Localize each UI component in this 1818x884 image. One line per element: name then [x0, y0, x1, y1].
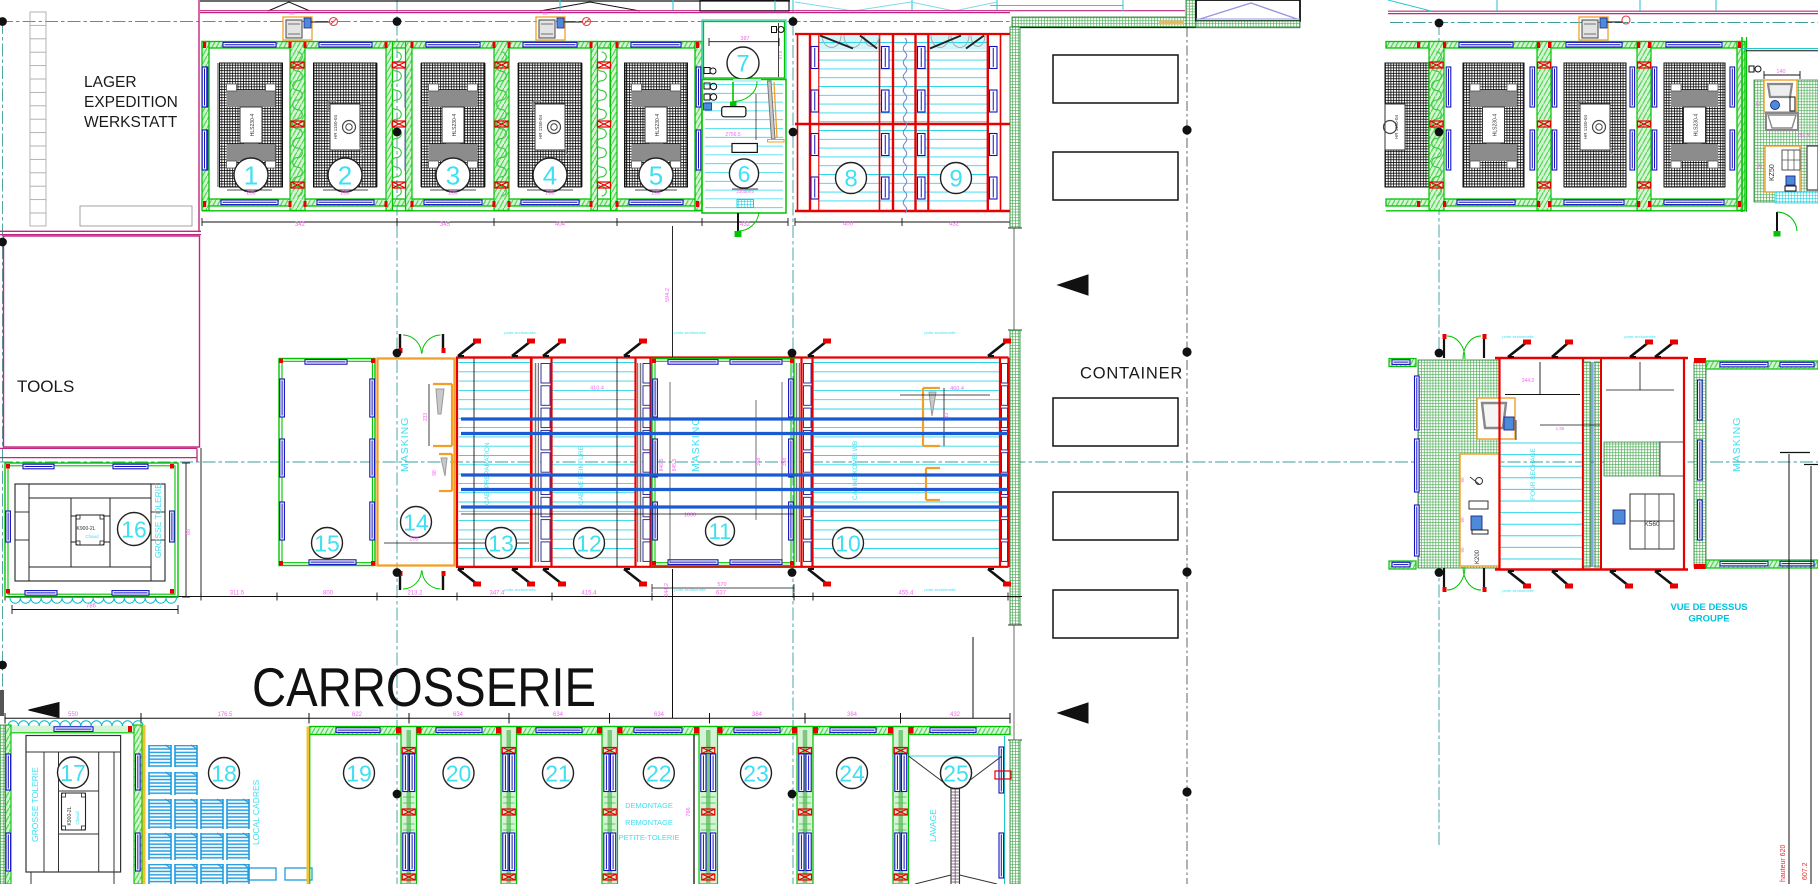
svg-text:20: 20 — [446, 760, 472, 786]
svg-text:HR 1150-04: HR 1150-04 — [1583, 115, 1588, 139]
svg-text:634: 634 — [453, 712, 464, 718]
svg-text:HLS230-4: HLS230-4 — [1694, 114, 1700, 137]
svg-text:14: 14 — [403, 509, 429, 535]
svg-text:REMONTAGE: REMONTAGE — [625, 818, 673, 827]
svg-text:230: 230 — [448, 191, 457, 197]
svg-text:230: 230 — [651, 191, 660, 197]
svg-text:KZ50: KZ50 — [1769, 164, 1776, 181]
svg-text:porte sectionnelle: porte sectionnelle — [1502, 588, 1534, 593]
svg-text:622: 622 — [352, 712, 363, 718]
svg-text:23: 23 — [743, 760, 769, 786]
svg-text:140: 140 — [1776, 69, 1785, 75]
svg-text:384: 384 — [847, 712, 858, 718]
svg-text:9: 9 — [949, 166, 962, 193]
svg-text:HLS230-4: HLS230-4 — [655, 114, 661, 137]
svg-text:LOCAL CADRES: LOCAL CADRES — [251, 779, 261, 845]
svg-text:K900-2L: K900-2L — [77, 526, 96, 532]
svg-text:EXPEDITION: EXPEDITION — [84, 94, 178, 111]
svg-text:MASKING: MASKING — [1731, 417, 1743, 472]
svg-text:MASKING: MASKING — [399, 417, 411, 472]
svg-text:800: 800 — [323, 591, 334, 597]
svg-text:634: 634 — [553, 712, 564, 718]
svg-text:432: 432 — [949, 222, 960, 228]
svg-text:HLS230-4: HLS230-4 — [452, 114, 458, 137]
svg-text:311.5: 311.5 — [230, 591, 245, 597]
svg-text:18: 18 — [211, 760, 237, 786]
svg-text:387: 387 — [740, 36, 749, 42]
svg-text:K560: K560 — [1644, 521, 1660, 528]
svg-text:LAGER: LAGER — [84, 74, 137, 91]
svg-text:porte sectionnelle: porte sectionnelle — [674, 330, 706, 335]
svg-text:3: 3 — [446, 160, 460, 190]
svg-text:460.4: 460.4 — [950, 386, 964, 392]
svg-text:230: 230 — [545, 191, 554, 197]
svg-text:607.2: 607.2 — [1802, 862, 1809, 880]
svg-text:12: 12 — [576, 530, 602, 556]
svg-text:CONTAINER: CONTAINER — [1080, 365, 1183, 383]
svg-text:HR 1150-04: HR 1150-04 — [333, 115, 338, 139]
svg-text:K900-2L: K900-2L — [67, 806, 73, 825]
svg-text:VUE DE DESSUS: VUE DE DESSUS — [1670, 602, 1747, 613]
svg-text:1: 1 — [244, 160, 258, 190]
svg-text:1600: 1600 — [684, 513, 696, 519]
svg-text:PETITE-TOLERIE: PETITE-TOLERIE — [619, 833, 680, 842]
svg-text:634: 634 — [654, 712, 665, 718]
svg-text:CABINE KOMBI WB: CABINE KOMBI WB — [852, 441, 859, 500]
svg-text:230: 230 — [340, 191, 349, 197]
svg-text:594.2: 594.2 — [665, 288, 671, 302]
svg-text:97.5: 97.5 — [778, 50, 783, 59]
svg-text:252.5: 252.5 — [1797, 133, 1810, 139]
svg-text:15: 15 — [314, 530, 340, 556]
svg-text:HLS230-4: HLS230-4 — [1493, 114, 1499, 137]
svg-text:hauteur 620: hauteur 620 — [1780, 845, 1787, 882]
svg-text:porte sectionnelle: porte sectionnelle — [504, 330, 536, 335]
svg-text:90: 90 — [1460, 517, 1465, 523]
svg-text:porte sectionnelle: porte sectionnelle — [924, 587, 956, 592]
svg-text:347.4: 347.4 — [489, 591, 505, 597]
svg-text:455.4: 455.4 — [898, 591, 914, 597]
svg-text:WERKSTATT: WERKSTATT — [84, 114, 178, 131]
svg-text:213.2: 213.2 — [407, 591, 423, 597]
svg-text:176.5: 176.5 — [217, 712, 233, 718]
svg-text:FOUR SECHAGE: FOUR SECHAGE — [1530, 447, 1537, 500]
svg-text:CARROSSERIE: CARROSSERIE — [252, 656, 596, 718]
svg-text:19: 19 — [346, 760, 372, 786]
svg-text:porte sectionnelle: porte sectionnelle — [1502, 334, 1534, 339]
svg-text:HLS230-4: HLS230-4 — [250, 114, 256, 137]
svg-text:TOOLS: TOOLS — [17, 377, 74, 396]
svg-text:404: 404 — [555, 222, 566, 228]
svg-text:637: 637 — [716, 591, 727, 597]
svg-text:415.4: 415.4 — [581, 591, 597, 597]
svg-text:432: 432 — [740, 222, 751, 228]
svg-text:16: 16 — [121, 516, 147, 542]
svg-text:200: 200 — [409, 537, 418, 543]
svg-text:25: 25 — [943, 760, 969, 786]
svg-text:98: 98 — [1758, 163, 1764, 169]
svg-text:13: 13 — [488, 530, 514, 556]
svg-text:porte sectionnelle: porte sectionnelle — [924, 330, 956, 335]
svg-text:358: 358 — [782, 458, 788, 467]
svg-text:96: 96 — [542, 11, 548, 16]
svg-text:75: 75 — [1756, 101, 1762, 107]
svg-text:358: 358 — [756, 458, 762, 467]
svg-text:550: 550 — [68, 712, 79, 718]
svg-text:342: 342 — [295, 222, 306, 228]
svg-text:96: 96 — [289, 11, 295, 16]
svg-text:HR 1150-04: HR 1150-04 — [1394, 115, 1399, 139]
svg-text:porte sectionnelle: porte sectionnelle — [504, 587, 536, 592]
svg-text:GROSSE TOLERIE: GROSSE TOLERIE — [30, 767, 40, 842]
svg-text:1.85: 1.85 — [1556, 426, 1565, 431]
svg-text:766: 766 — [686, 807, 692, 816]
svg-text:230demi: 230demi — [736, 189, 753, 194]
svg-text:570: 570 — [717, 582, 726, 588]
svg-text:400: 400 — [843, 222, 854, 228]
svg-text:410.4: 410.4 — [590, 386, 604, 392]
svg-text:17: 17 — [60, 760, 86, 786]
svg-text:porte sectionnelle: porte sectionnelle — [1624, 334, 1656, 339]
svg-text:K200: K200 — [1475, 549, 1481, 564]
svg-text:230: 230 — [246, 191, 255, 197]
svg-text:432: 432 — [950, 712, 961, 718]
svg-text:24: 24 — [839, 760, 865, 786]
svg-text:4: 4 — [543, 160, 557, 190]
svg-text:846.5: 846.5 — [659, 459, 665, 472]
svg-text:DEMONTAGE: DEMONTAGE — [625, 801, 673, 810]
svg-text:98: 98 — [432, 470, 438, 476]
svg-text:Chaud: Chaud — [85, 534, 99, 539]
svg-text:8: 8 — [844, 166, 857, 193]
svg-text:22: 22 — [646, 760, 672, 786]
svg-text:2: 2 — [338, 160, 352, 190]
svg-text:HR 1150-04: HR 1150-04 — [538, 115, 543, 139]
svg-text:345: 345 — [440, 222, 451, 228]
svg-text:11: 11 — [709, 519, 732, 544]
svg-text:21: 21 — [545, 760, 571, 786]
svg-text:344.2: 344.2 — [1522, 378, 1535, 384]
svg-text:GROSSE TOLERIE: GROSSE TOLERIE — [153, 483, 163, 558]
svg-text:5: 5 — [649, 160, 663, 190]
svg-text:Chaud: Chaud — [75, 811, 80, 825]
svg-text:MASKING: MASKING — [690, 417, 702, 472]
svg-text:GROUPE: GROUPE — [1688, 614, 1729, 625]
svg-text:88: 88 — [186, 529, 192, 535]
svg-text:7: 7 — [736, 51, 749, 78]
svg-text:6: 6 — [738, 161, 751, 187]
svg-text:786: 786 — [86, 604, 97, 610]
svg-text:90: 90 — [1460, 477, 1465, 483]
svg-text:845.5: 845.5 — [672, 459, 678, 472]
svg-text:LAVAGE: LAVAGE — [928, 809, 938, 842]
svg-text:2756.5: 2756.5 — [725, 132, 741, 138]
svg-text:233: 233 — [423, 413, 429, 422]
svg-text:10: 10 — [835, 530, 861, 556]
svg-text:90: 90 — [1460, 547, 1465, 553]
svg-text:384: 384 — [752, 712, 763, 718]
svg-text:244.2: 244.2 — [664, 583, 670, 597]
